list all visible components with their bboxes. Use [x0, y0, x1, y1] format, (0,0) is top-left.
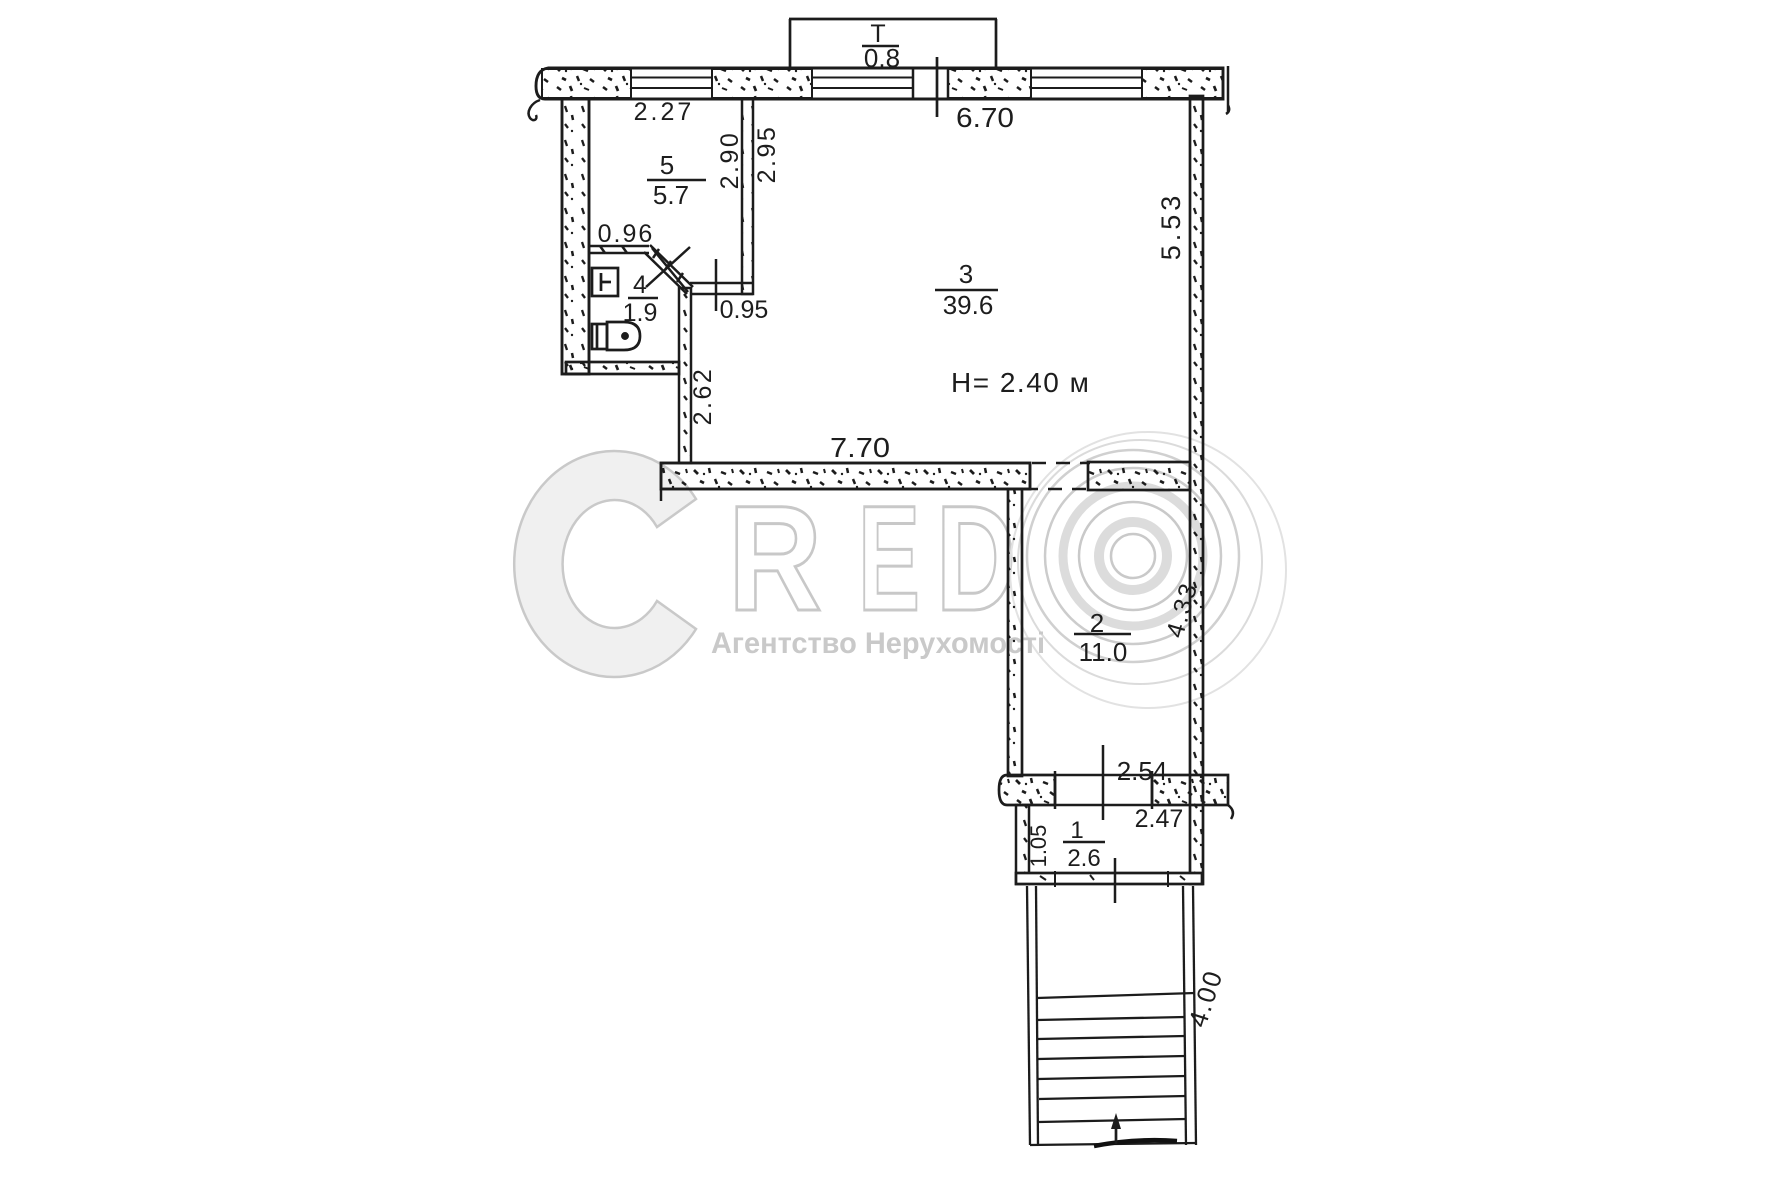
- svg-text:2.62: 2.62: [689, 367, 717, 426]
- svg-text:5.7: 5.7: [653, 180, 689, 210]
- svg-text:5: 5: [660, 150, 674, 180]
- svg-text:E: E: [858, 474, 920, 642]
- svg-text:2.27: 2.27: [634, 98, 695, 126]
- svg-text:D: D: [936, 474, 1016, 642]
- svg-text:1: 1: [1070, 817, 1083, 844]
- svg-text:H= 2.40 м: H= 2.40 м: [951, 367, 1090, 398]
- svg-text:3: 3: [959, 259, 973, 289]
- svg-text:2.95: 2.95: [753, 125, 781, 184]
- svg-text:6.70: 6.70: [956, 102, 1014, 133]
- svg-text:11.0: 11.0: [1079, 637, 1128, 667]
- svg-text:0.95: 0.95: [720, 296, 769, 324]
- svg-text:7.70: 7.70: [830, 432, 890, 463]
- svg-text:5.53: 5.53: [1156, 192, 1186, 261]
- svg-text:2.90: 2.90: [716, 131, 744, 190]
- svg-text:2.6: 2.6: [1067, 845, 1100, 872]
- svg-text:Агентство Нерухомості: Агентство Нерухомості: [711, 627, 1045, 660]
- svg-text:0.96: 0.96: [598, 220, 655, 248]
- svg-text:1.05: 1.05: [1026, 825, 1051, 868]
- svg-text:4: 4: [633, 271, 647, 299]
- svg-text:R: R: [728, 474, 822, 642]
- svg-text:39.6: 39.6: [943, 290, 994, 320]
- svg-text:2.47: 2.47: [1135, 805, 1184, 833]
